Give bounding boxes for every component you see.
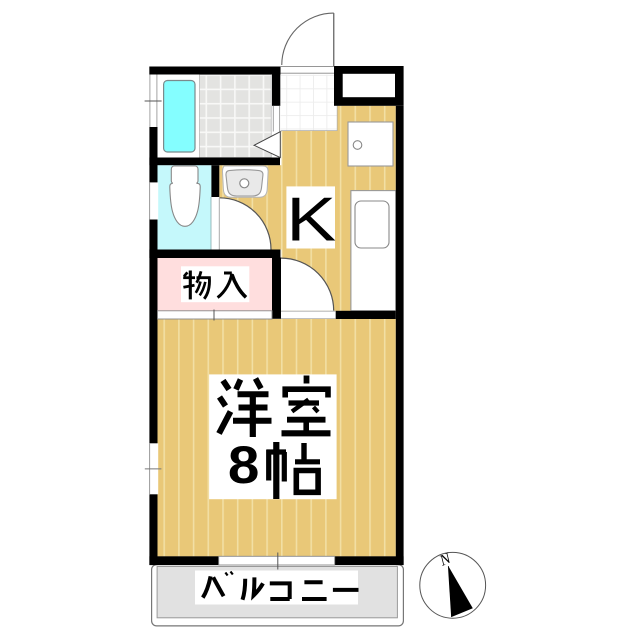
svg-text:K: K [286, 185, 336, 254]
svg-text:8: 8 [228, 436, 260, 495]
